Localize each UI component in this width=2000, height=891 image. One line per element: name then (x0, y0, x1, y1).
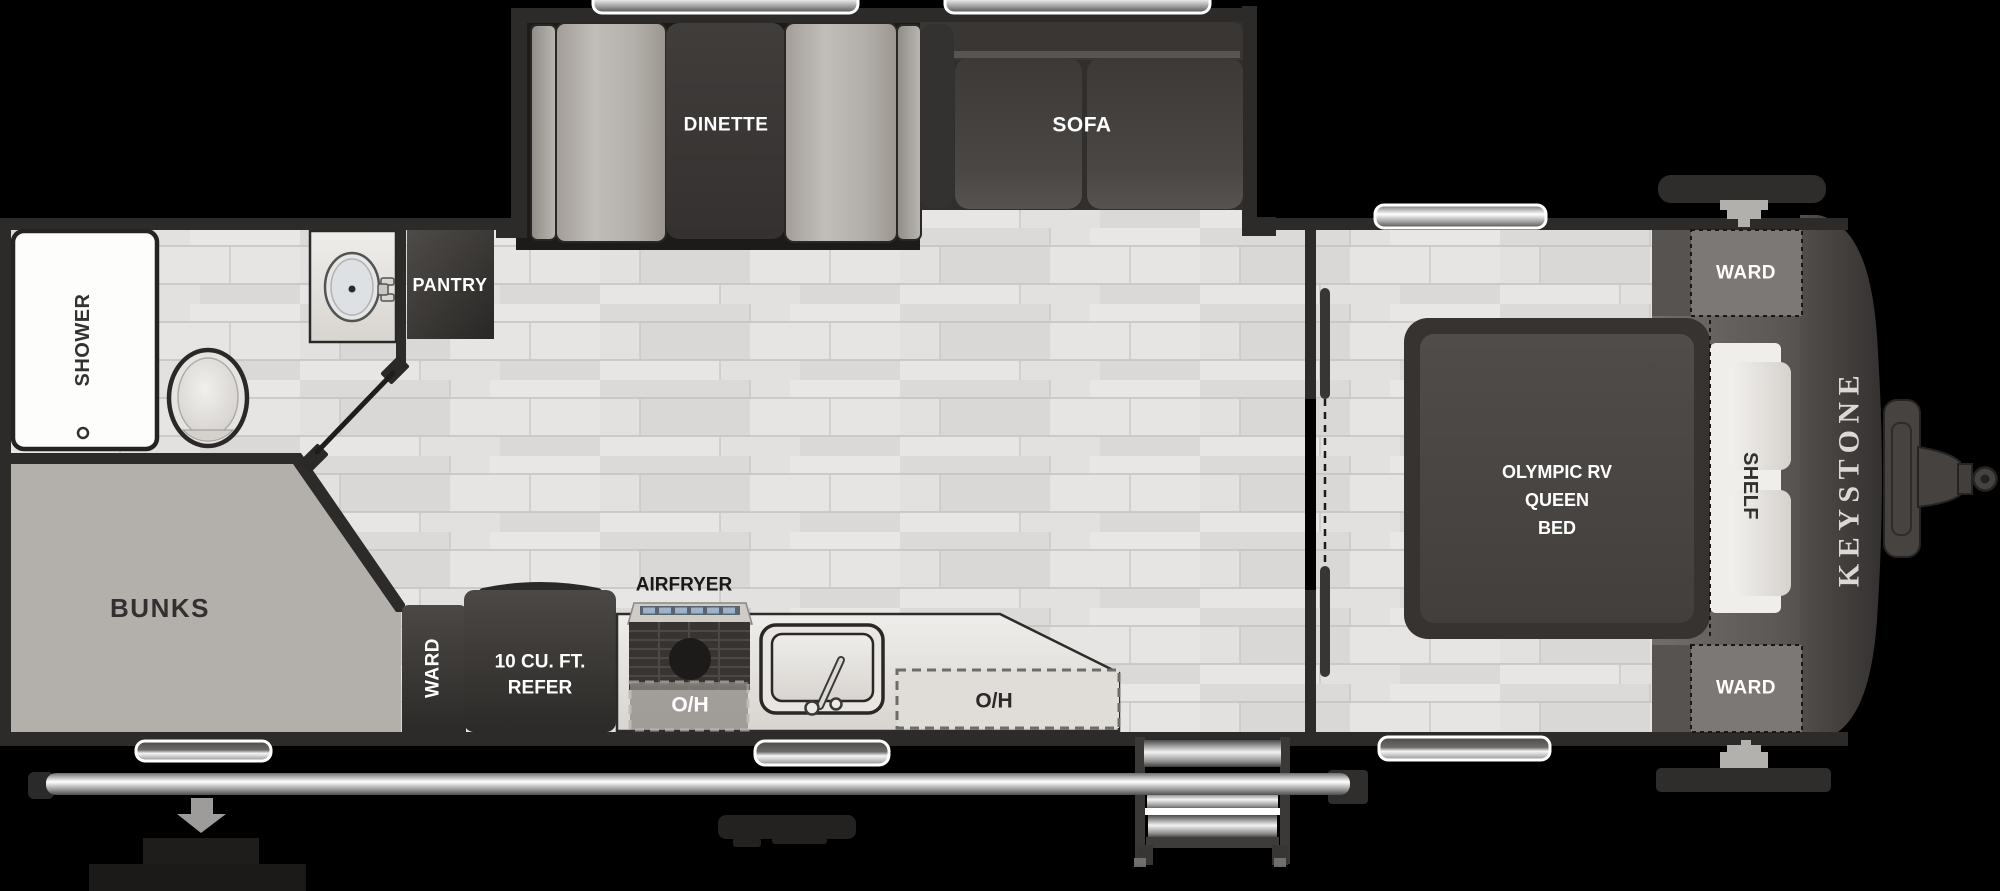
svg-text:WARD: WARD (1716, 263, 1776, 284)
svg-text:BUNKS: BUNKS (110, 593, 210, 623)
svg-text:O/H: O/H (975, 690, 1012, 713)
svg-text:SHELF: SHELF (1739, 452, 1761, 520)
svg-text:BED: BED (1538, 518, 1576, 538)
svg-text:AIRFRYER: AIRFRYER (636, 575, 733, 596)
svg-text:KEYSTONE: KEYSTONE (1833, 369, 1866, 587)
svg-text:PANTRY: PANTRY (413, 275, 488, 295)
svg-text:OLYMPIC RV: OLYMPIC RV (1502, 462, 1612, 482)
svg-text:10 CU. FT.: 10 CU. FT. (495, 652, 586, 673)
svg-text:REFER: REFER (508, 678, 573, 699)
svg-text:WARD: WARD (1716, 678, 1776, 699)
svg-text:QUEEN: QUEEN (1525, 490, 1589, 510)
svg-text:SOFA: SOFA (1052, 114, 1111, 137)
svg-text:O/H: O/H (671, 694, 708, 717)
svg-text:WARD: WARD (423, 638, 444, 698)
svg-text:SHOWER: SHOWER (72, 293, 94, 386)
svg-text:DINETTE: DINETTE (684, 115, 769, 136)
